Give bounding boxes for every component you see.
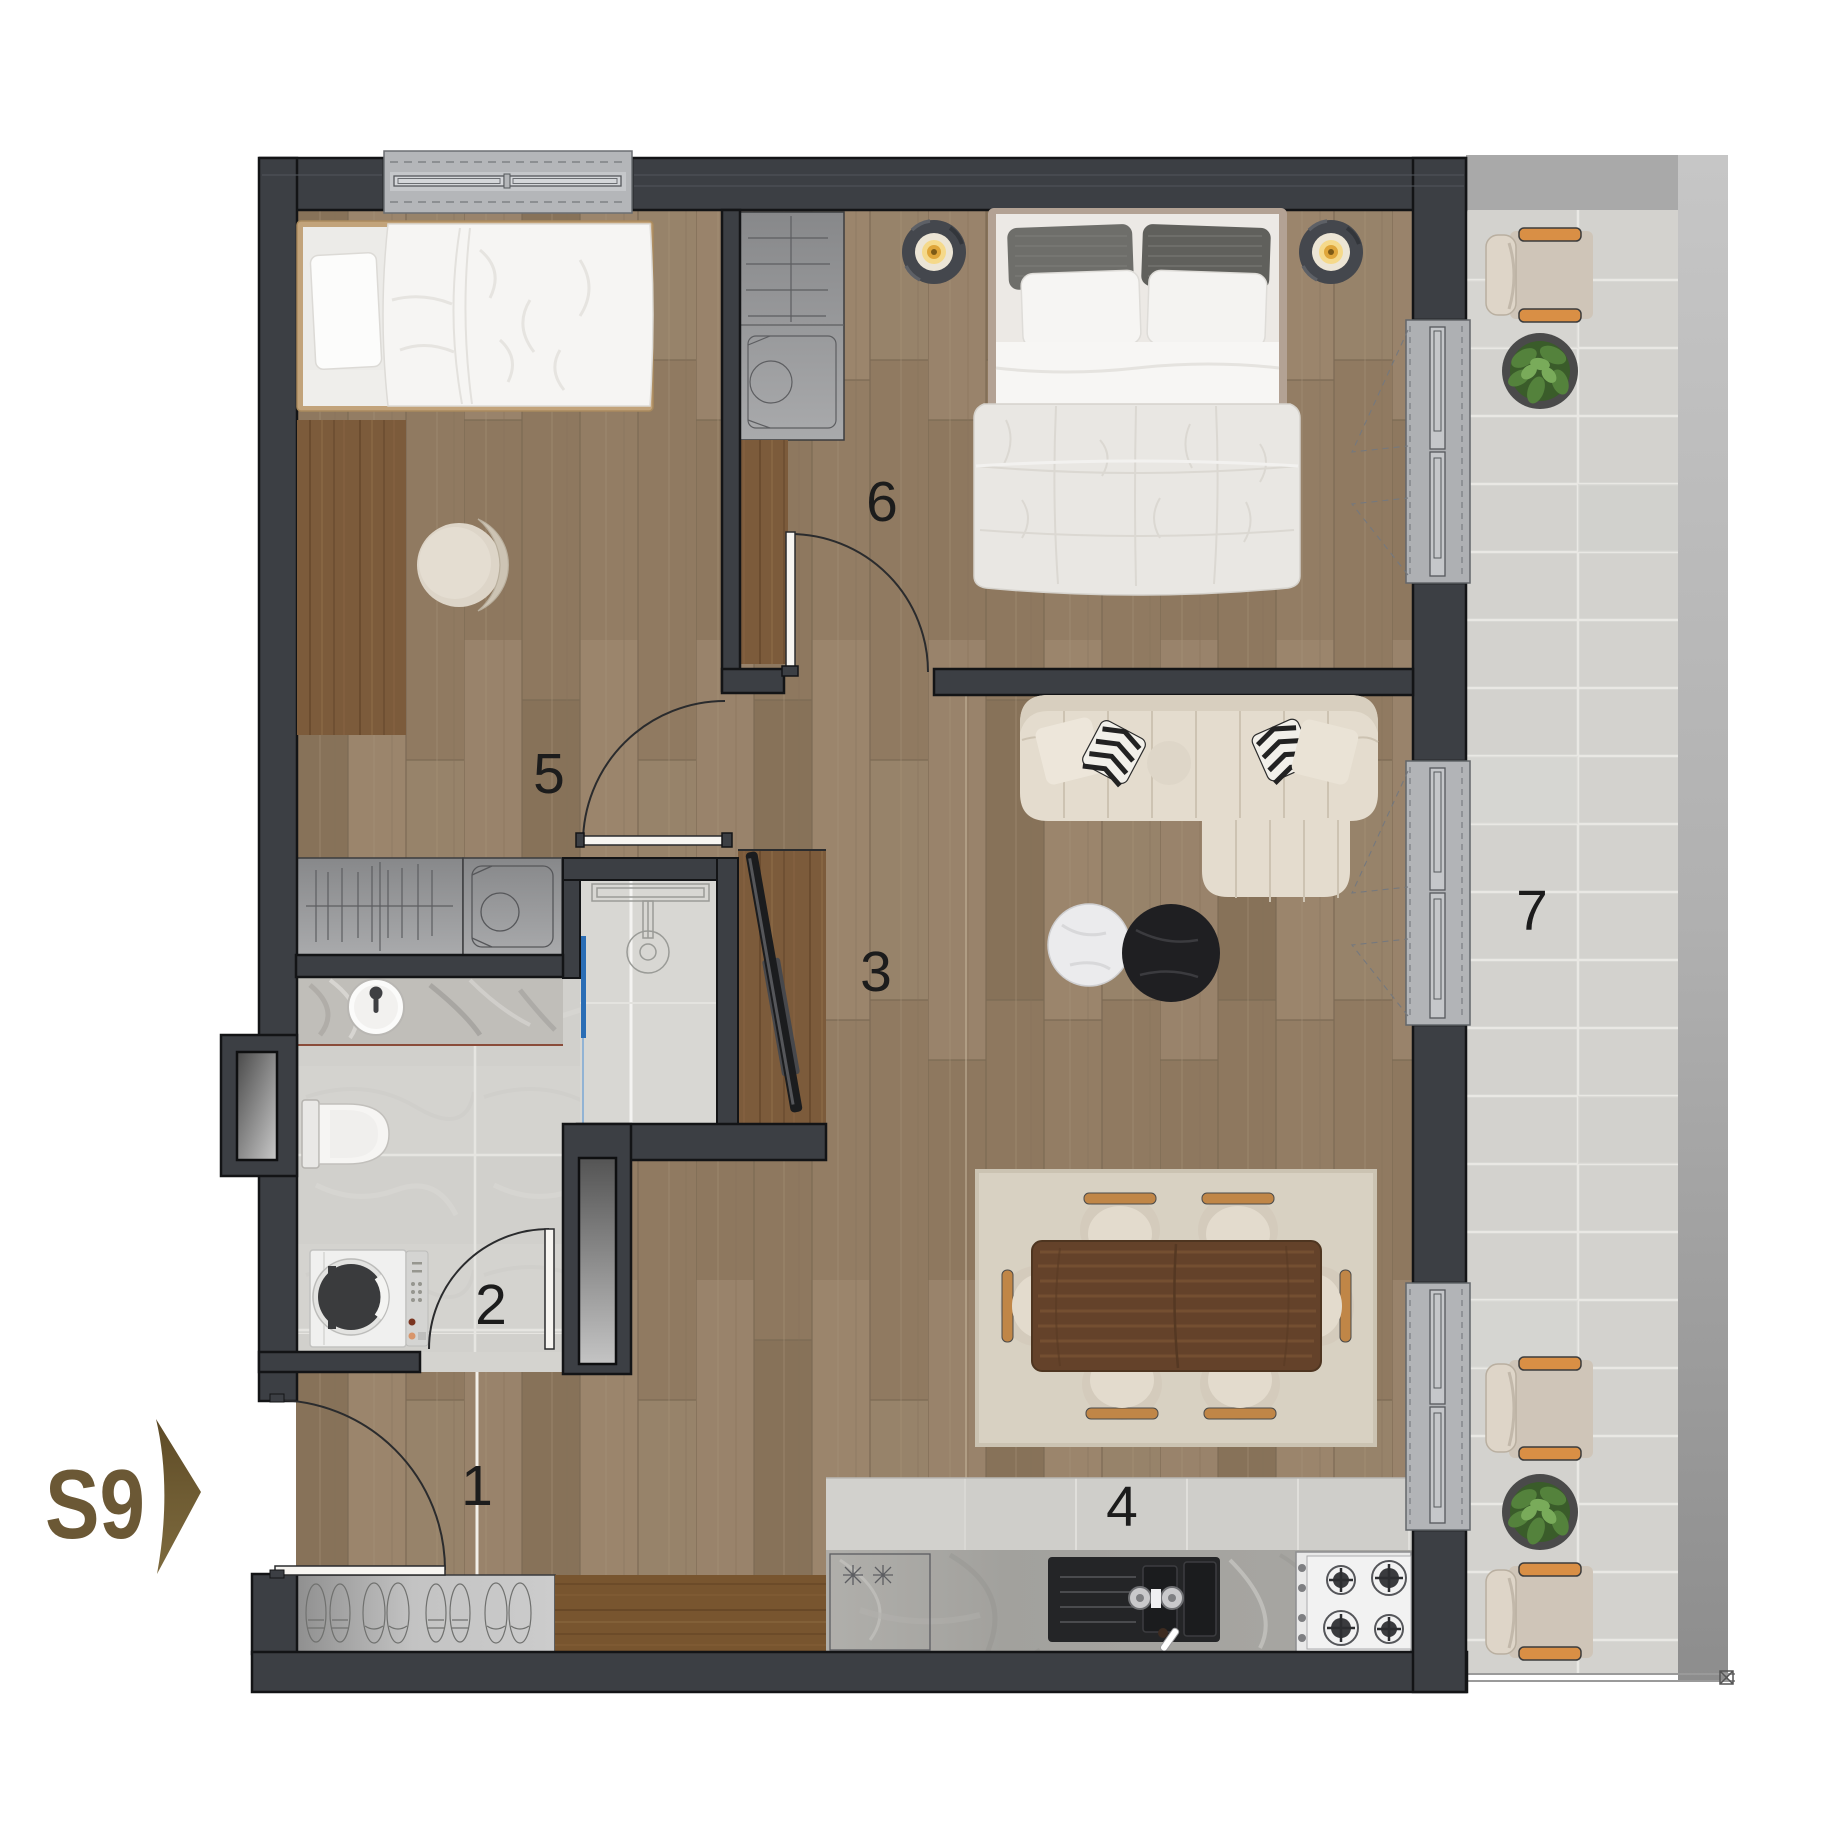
- svg-text:S9: S9: [45, 1449, 145, 1559]
- svg-text:2: 2: [475, 1273, 507, 1337]
- svg-text:5: 5: [533, 742, 565, 806]
- svg-text:6: 6: [866, 470, 898, 534]
- svg-text:4: 4: [1106, 1475, 1138, 1539]
- svg-text:3: 3: [860, 940, 892, 1004]
- svg-text:7: 7: [1516, 879, 1548, 943]
- svg-text:1: 1: [461, 1454, 493, 1518]
